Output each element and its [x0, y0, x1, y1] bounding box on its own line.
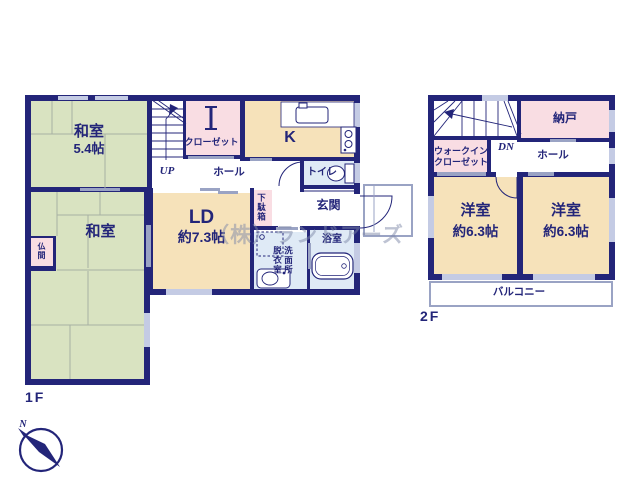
- floor-label-2f: 2F: [420, 308, 440, 324]
- watermark: （株）ランドアーズ: [208, 219, 404, 249]
- closet-pole-icon: [205, 107, 217, 129]
- room-label-washitsu-1: 和室: [31, 124, 147, 141]
- room-label-senmenjo: 洗面所: [284, 246, 293, 275]
- room-label-datsuishitsu: 脱衣室: [273, 246, 282, 275]
- stairs-1f: [152, 96, 186, 160]
- room-label-west-left: 洋室: [434, 203, 517, 220]
- room-label-closet-1f: クローゼット: [183, 137, 240, 147]
- room-label-butsuma: 仏間: [37, 242, 45, 260]
- stairs-dn-label: DN: [490, 141, 522, 153]
- bathtub-icon: [312, 253, 353, 279]
- room-label-kitchen: K: [245, 129, 335, 147]
- room-label-wic-line2: クローゼット: [432, 157, 490, 167]
- room-label-hall-1f: ホール: [198, 167, 260, 179]
- faucet-icon: [299, 103, 307, 108]
- room-label-hall-2f: ホール: [520, 150, 586, 162]
- room-label-washitsu-2: 和室: [57, 224, 144, 241]
- floor-label-1f: 1F: [25, 389, 45, 405]
- room-size-washitsu-1: 5.4帖: [31, 142, 147, 157]
- room-size-west-left: 約6.3帖: [434, 224, 517, 239]
- bedroom-door-arc: [496, 177, 517, 198]
- compass-icon: [18, 428, 62, 471]
- kitchen-sink-icon: [296, 107, 328, 123]
- room-label-genkan: 玄関: [303, 199, 354, 212]
- compass-north-label: N: [16, 419, 30, 430]
- room-label-nando: 納戸: [521, 112, 609, 125]
- toilet-door-arc: [279, 162, 303, 186]
- room-label-getabako: 下駄箱: [257, 193, 266, 222]
- room-size-west-right: 約6.3帖: [523, 224, 609, 239]
- room-label-west-right: 洋室: [523, 203, 609, 220]
- stairs-2f: [434, 101, 521, 136]
- stairs-up-label: UP: [148, 165, 186, 177]
- room-label-wic-line1: ウォークイン: [432, 146, 490, 156]
- room-label-toilet: トイレ: [304, 167, 340, 178]
- floorplan-canvas: 和室 5.4帖 UP クローゼット K ホール トイレ 玄関 下駄箱 LD 約7…: [0, 0, 640, 480]
- balcony-label: バルコニー: [429, 287, 609, 299]
